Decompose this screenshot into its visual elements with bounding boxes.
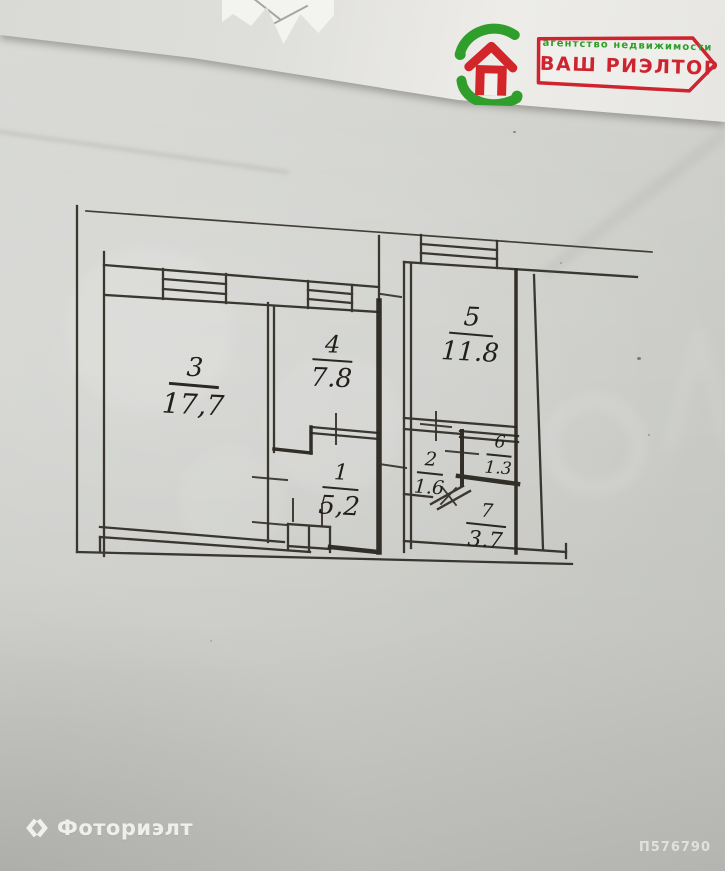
floor-plan-drawing — [0, 0, 725, 871]
room-number: 4 — [325, 332, 341, 357]
room-area: 1.3 — [484, 460, 512, 479]
room-number: 2 — [424, 450, 437, 470]
room-area: 5,2 — [318, 492, 361, 520]
room-label-1: 1 5,2 — [318, 461, 362, 520]
photo-service-watermark: Фоториэлт — [26, 816, 193, 840]
room-label-5: 5 11.8 — [440, 303, 501, 367]
room-label-2: 2 1.6 — [413, 450, 446, 499]
photoreal-diamond-icon — [26, 817, 48, 839]
room-label-3: 3 17,7 — [161, 353, 227, 420]
paper-speck — [513, 131, 516, 133]
paper-speck — [648, 434, 650, 436]
room-number: 6 — [494, 434, 506, 452]
room-label-7: 7 3.7 — [464, 501, 507, 554]
paper-speck — [637, 357, 641, 360]
hands-house-icon — [451, 18, 531, 106]
room-area: 11.8 — [440, 338, 499, 367]
room-area: 3.7 — [467, 529, 503, 553]
room-number: 1 — [333, 462, 348, 485]
room-label-4: 4 7.8 — [310, 332, 353, 392]
photo-service-name: Фоториэлт — [57, 816, 193, 840]
logo-brand-text: ВАШ РИЭЛТОР — [540, 53, 707, 80]
logo-banner: агентство недвижимости ВАШ РИЭЛТОР — [531, 29, 719, 98]
floor-plan-photo: 3 17,7 4 7.8 5 11.8 1 5,2 2 1.6 6 1.3 7 … — [0, 0, 725, 871]
room-area: 17,7 — [161, 389, 225, 420]
photo-code-watermark: П576790 — [639, 840, 711, 855]
room-number: 7 — [480, 502, 493, 522]
agency-logo: агентство недвижимости ВАШ РИЭЛТОР — [451, 16, 719, 109]
room-area: 1.6 — [413, 477, 444, 498]
room-label-6: 6 1.3 — [484, 434, 514, 479]
room-area: 7.8 — [310, 365, 352, 392]
room-number: 5 — [463, 304, 481, 331]
room-number: 3 — [186, 355, 204, 382]
paper-speck — [210, 640, 212, 642]
